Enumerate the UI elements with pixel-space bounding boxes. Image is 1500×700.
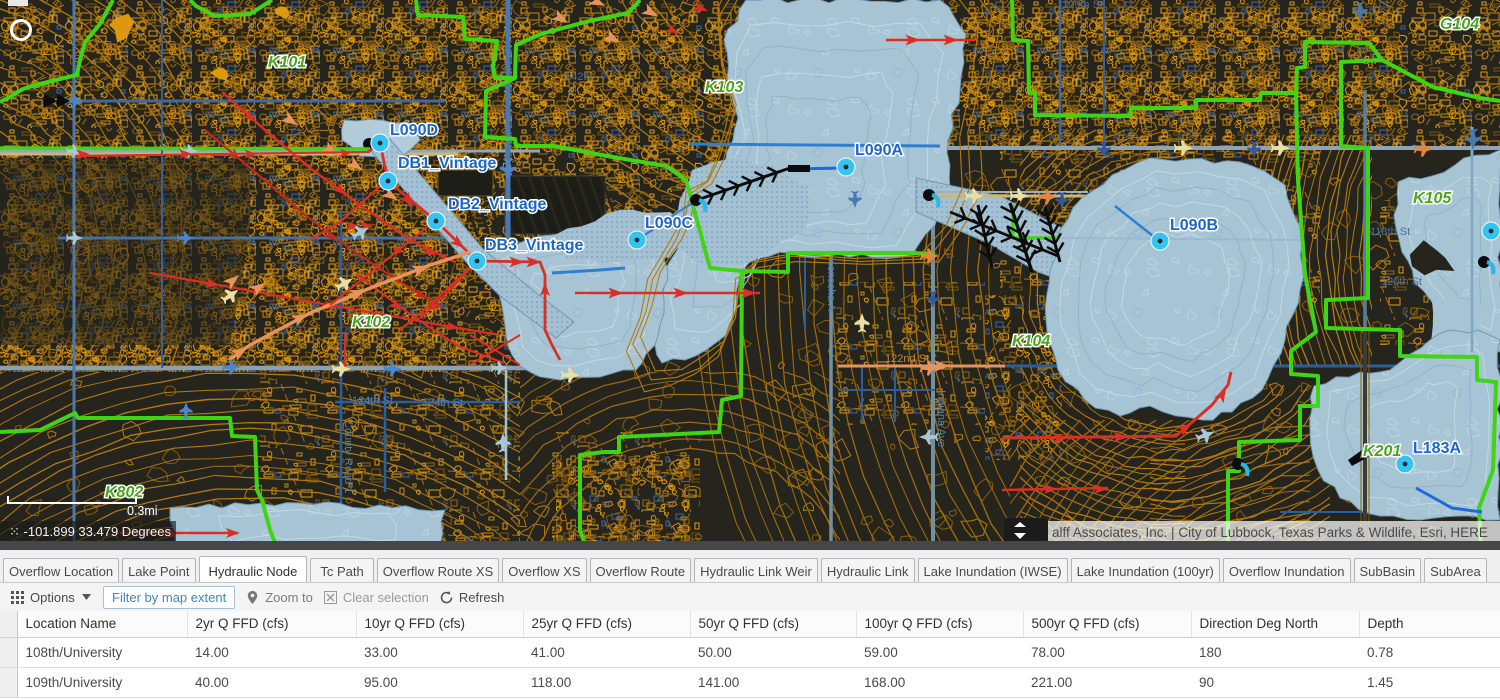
svg-text:K802: K802 xyxy=(105,484,143,501)
svg-text:109th St: 109th St xyxy=(1062,0,1103,11)
svg-text:142th: 142th xyxy=(565,71,593,83)
svg-text:K201: K201 xyxy=(1363,443,1401,460)
svg-text:K105: K105 xyxy=(1413,190,1452,207)
svg-text:DB3_Vintage: DB3_Vintage xyxy=(485,237,584,254)
svg-text:L183A: L183A xyxy=(1413,440,1461,457)
svg-text:L090D: L090D xyxy=(390,122,438,139)
svg-text:124th St: 124th St xyxy=(422,397,463,409)
svg-text:K104: K104 xyxy=(1012,333,1050,350)
svg-text:122nd St: 122nd St xyxy=(885,353,929,365)
svg-text:L090C: L090C xyxy=(645,215,693,232)
svg-text:alff Associates, Inc. | City o: alff Associates, Inc. | City of Lubbock,… xyxy=(1052,525,1488,540)
svg-text:G104: G104 xyxy=(1440,16,1479,33)
svg-text:L090B: L090B xyxy=(1170,217,1218,234)
svg-text:⁙ -101.899 33.479 Degrees: ⁙ -101.899 33.479 Degrees xyxy=(9,524,171,539)
svg-text:118th St: 118th St xyxy=(1370,226,1410,238)
svg-text:County Road 1: County Road 1 xyxy=(342,420,354,493)
svg-text:120th St: 120th St xyxy=(1381,276,1422,288)
svg-text:0.3mi: 0.3mi xyxy=(127,504,158,518)
svg-text:Kenosha A: Kenosha A xyxy=(825,258,837,312)
svg-text:124th St: 124th St xyxy=(352,395,393,407)
svg-text:K103: K103 xyxy=(705,79,743,96)
svg-text:DB1_Vintage: DB1_Vintage xyxy=(398,155,497,172)
svg-text:L090A: L090A xyxy=(855,142,903,159)
svg-text:DB2_Vintage: DB2_Vintage xyxy=(448,196,547,213)
svg-text:K102: K102 xyxy=(352,314,390,331)
svg-text:Indiana Ave: Indiana Ave xyxy=(935,390,947,447)
svg-text:K101: K101 xyxy=(268,54,306,71)
